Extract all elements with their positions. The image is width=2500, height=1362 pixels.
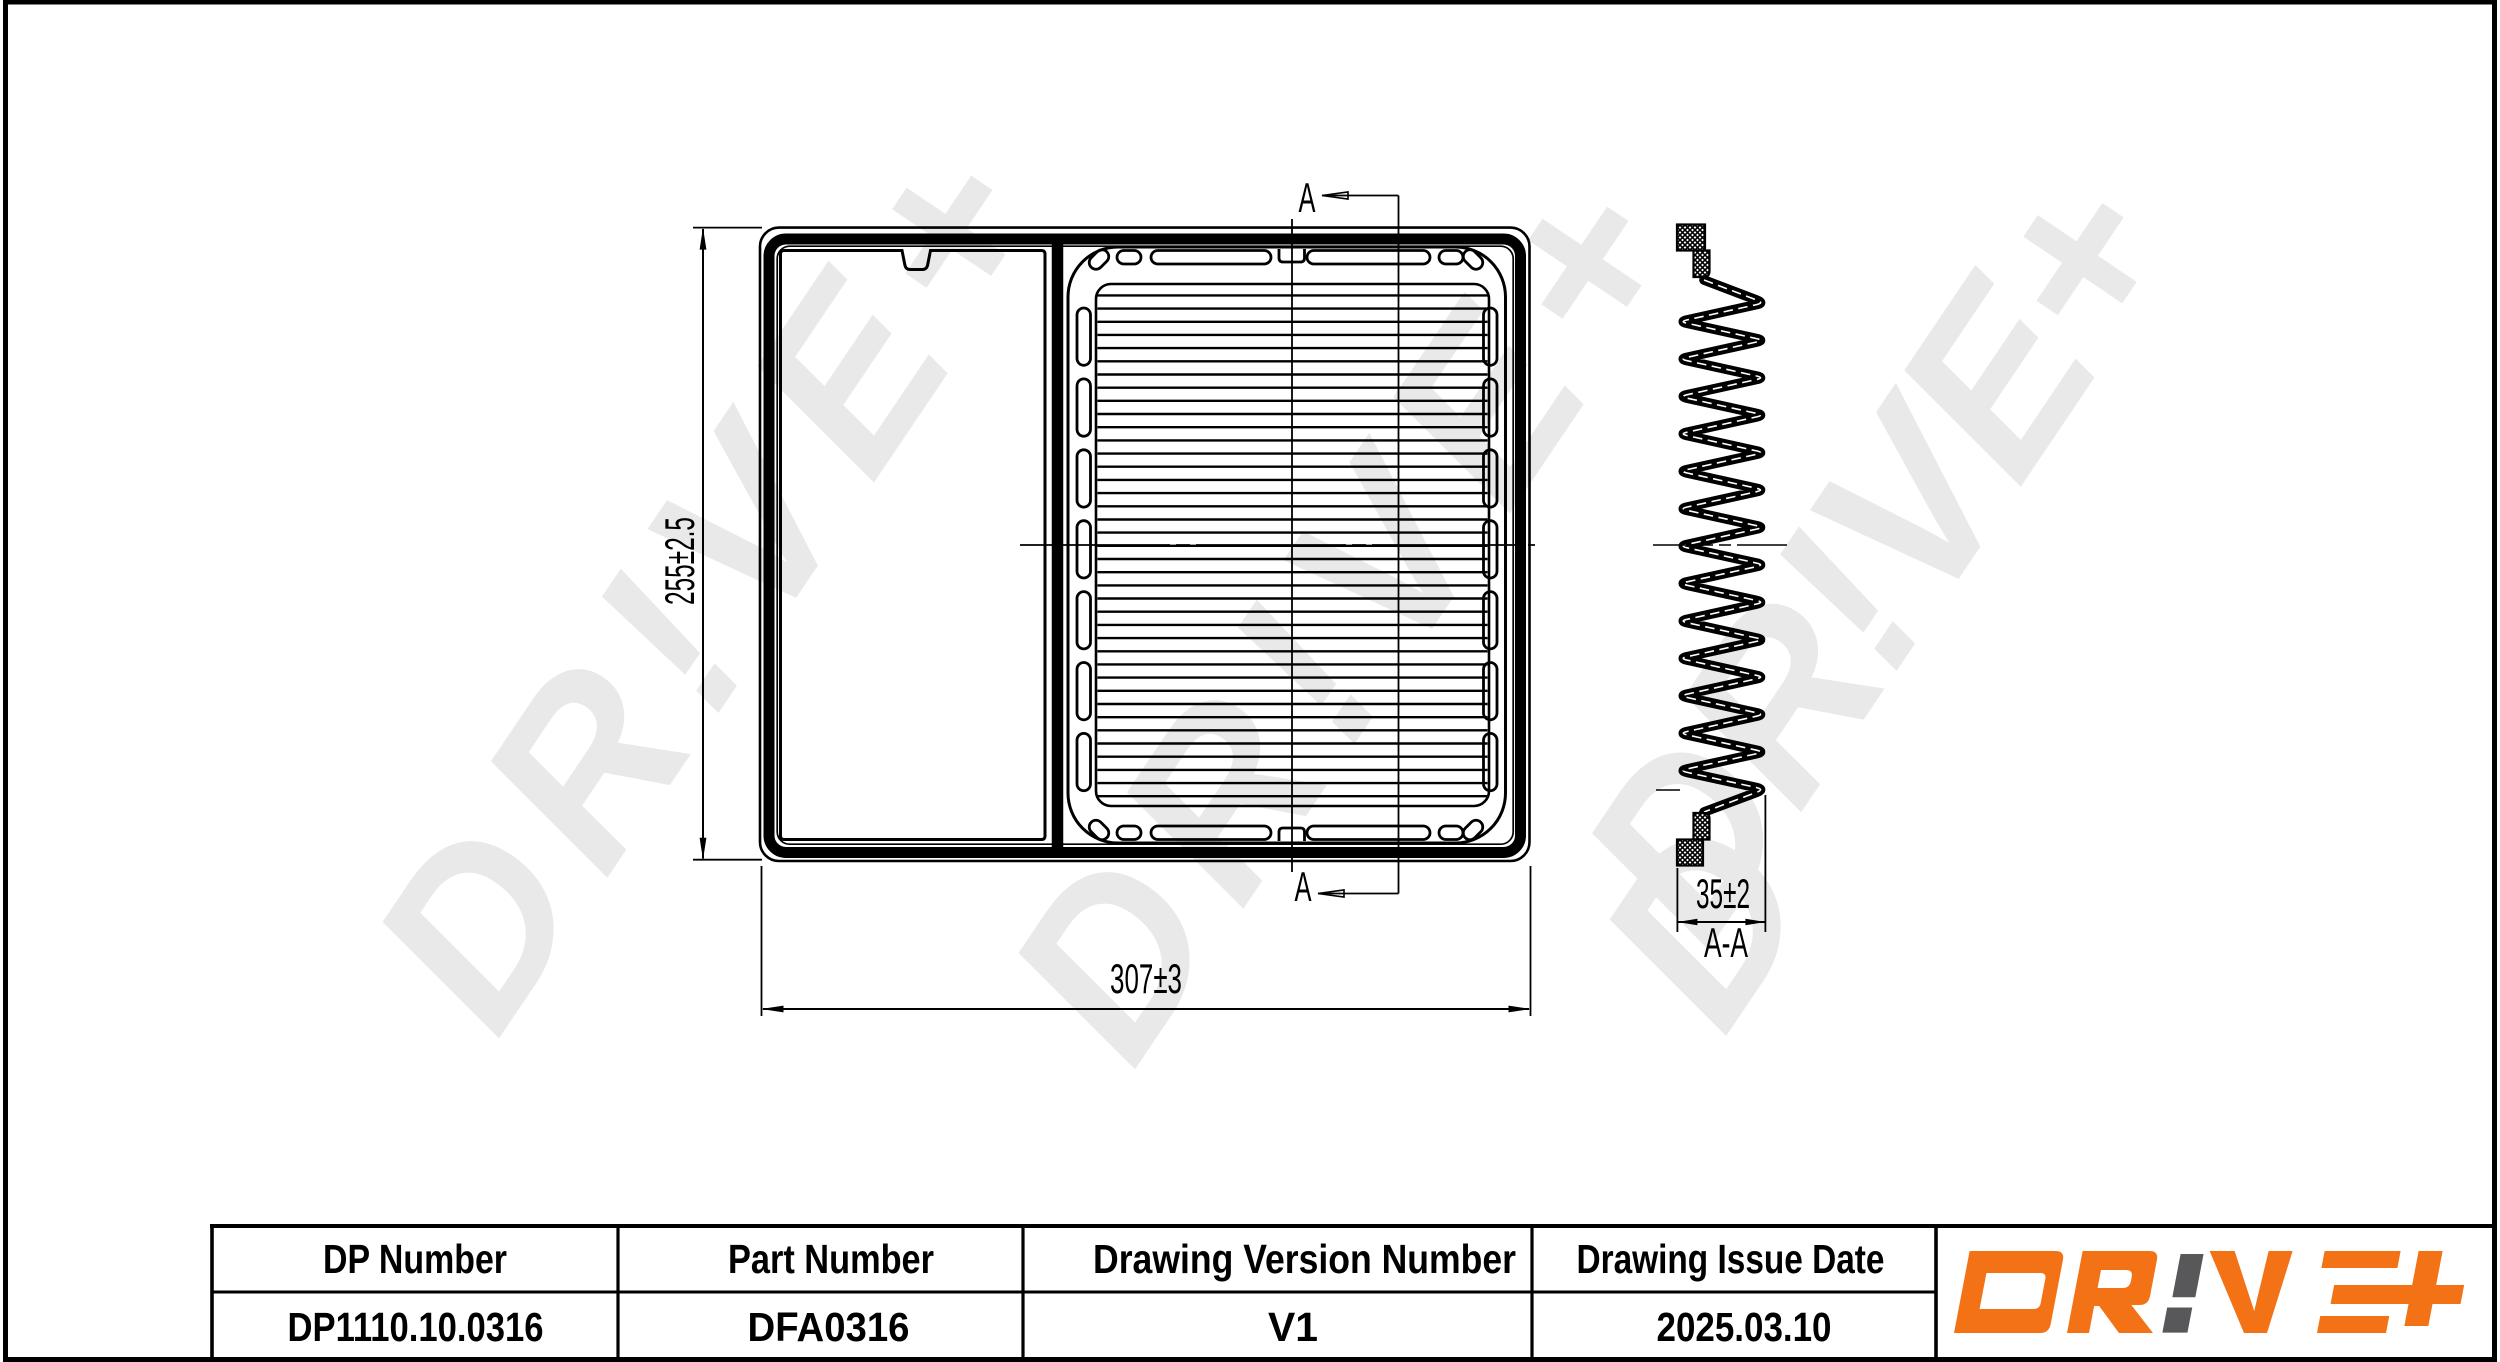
svg-text:Drawing Version Number: Drawing Version Number: [1093, 1236, 1516, 1282]
svg-text:V1: V1: [1268, 1304, 1318, 1350]
svg-text:Drawing Issue Date: Drawing Issue Date: [1577, 1236, 1885, 1282]
svg-text:A: A: [1299, 174, 1316, 221]
svg-text:A-A: A-A: [1704, 919, 1748, 966]
svg-text:DP1110.10.0316: DP1110.10.0316: [288, 1304, 544, 1350]
svg-text:2025.03.10: 2025.03.10: [1657, 1304, 1832, 1350]
svg-text:255±2.5: 255±2.5: [656, 517, 703, 605]
svg-text:35±2: 35±2: [1696, 870, 1750, 917]
svg-text:Part Number: Part Number: [728, 1236, 934, 1282]
svg-text:A: A: [1295, 863, 1312, 910]
svg-text:DFA0316: DFA0316: [748, 1304, 910, 1350]
svg-text:DP Number: DP Number: [323, 1236, 507, 1282]
svg-text:307±3: 307±3: [1110, 955, 1182, 1002]
